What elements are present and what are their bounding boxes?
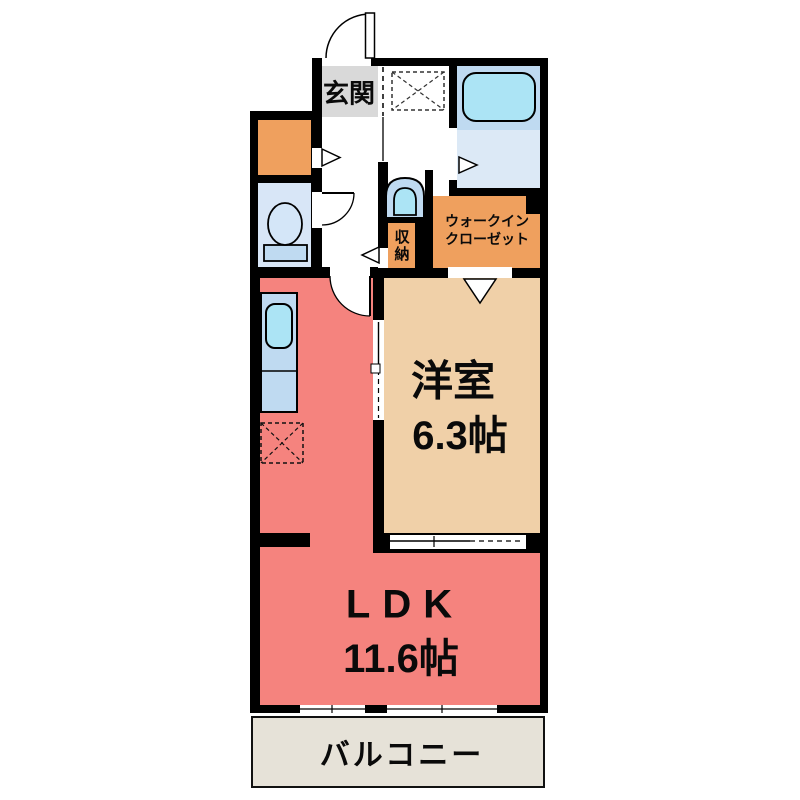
entrance-label: 玄関 xyxy=(323,74,375,111)
entrance-door-leaf xyxy=(366,13,375,58)
sliding-door-band-vertical xyxy=(373,320,384,420)
sliding-door-band-horizontal xyxy=(390,535,526,549)
bathroom-doorway xyxy=(449,128,457,180)
window-band-left xyxy=(300,705,365,713)
ldk-size: 11.6帖 xyxy=(343,626,459,684)
wall-wic-notch xyxy=(526,196,548,214)
floorplan-canvas: 玄関 収納 ウォークイン クローゼット 洋室 6.3帖 LDK 11.6帖 バル… xyxy=(0,0,800,800)
washroom xyxy=(388,66,449,217)
ldk-doorway xyxy=(330,267,370,278)
hallway xyxy=(322,117,378,267)
storage-opening xyxy=(378,248,388,268)
entrance-door-arc xyxy=(326,14,370,58)
balcony-label: バルコニー xyxy=(320,730,484,774)
hall-closet-opening xyxy=(312,148,322,168)
kitchen-counter xyxy=(260,292,298,413)
ldk-label: LDK xyxy=(346,583,464,628)
entrance-door-opening xyxy=(322,58,371,66)
wic-bedroom-opening xyxy=(448,267,512,278)
wall-washroom-wic xyxy=(425,170,433,223)
wall-kitchen-stub xyxy=(250,533,310,547)
toilet-doorway xyxy=(312,192,322,228)
hall-storage-label: 収納 xyxy=(391,229,412,263)
western-room-size: 6.3帖 xyxy=(412,403,508,461)
window-band-right xyxy=(387,705,497,713)
western-room-label: 洋室 xyxy=(411,348,495,409)
bathroom-floor xyxy=(457,130,540,188)
toilet-room xyxy=(258,183,311,267)
utility-closet xyxy=(258,120,311,175)
walk-in-closet-label-line2: クローゼット xyxy=(445,230,529,248)
entrance-washroom-boundary xyxy=(378,66,388,162)
walk-in-closet-label: ウォークイン クローゼット xyxy=(445,212,529,248)
bathtub-deck xyxy=(457,66,540,130)
walk-in-closet-label-line1: ウォークイン xyxy=(445,212,529,230)
